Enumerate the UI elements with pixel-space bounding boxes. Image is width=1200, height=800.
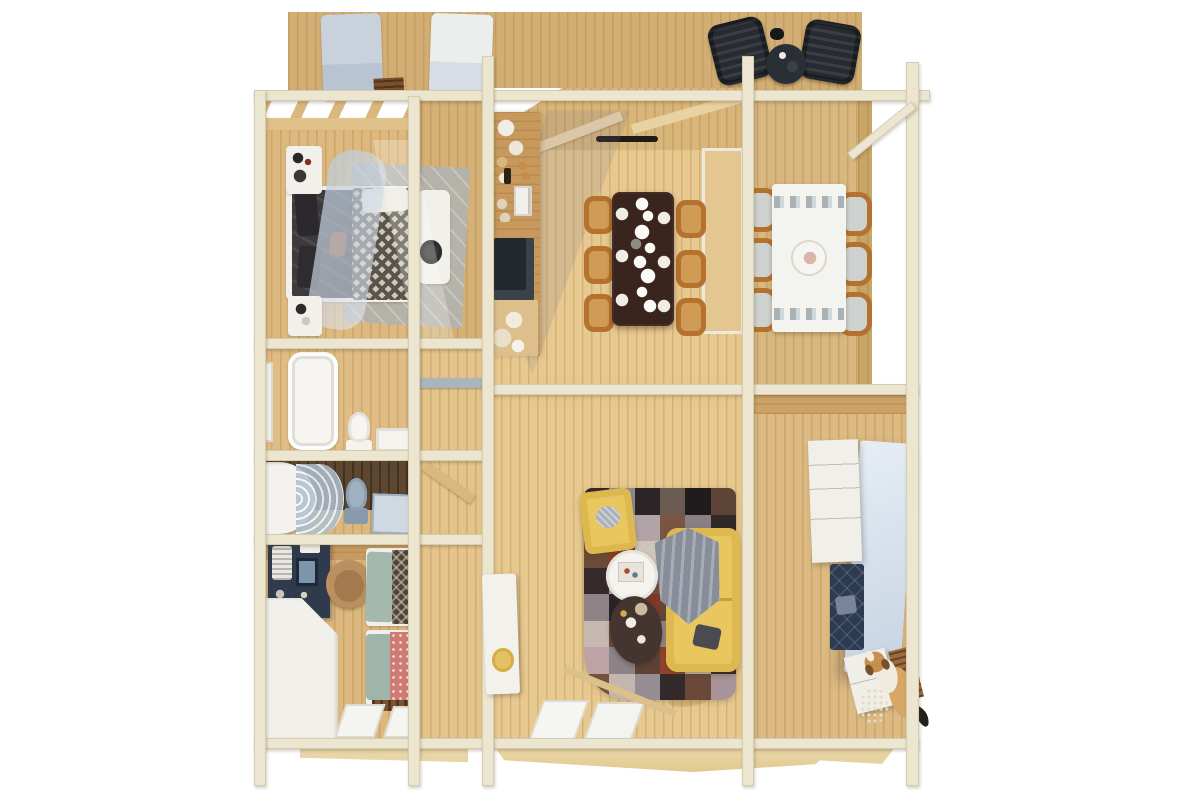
bench-pillow bbox=[835, 595, 857, 616]
cut-post-right-of-main bbox=[742, 56, 754, 786]
table-runner-band bbox=[774, 196, 844, 208]
patio-table bbox=[766, 44, 806, 84]
kettle bbox=[770, 28, 784, 40]
plate bbox=[787, 61, 798, 72]
knit-blanket-ball bbox=[596, 506, 620, 528]
dresser-decor bbox=[292, 152, 314, 186]
pergola-post-right bbox=[906, 62, 919, 786]
coffee-machine bbox=[514, 186, 532, 216]
lounge-chair bbox=[797, 18, 863, 87]
toilet-bowl bbox=[348, 412, 370, 442]
cut-post-mid-left bbox=[408, 96, 420, 786]
dining-chair bbox=[584, 246, 614, 284]
cup bbox=[779, 52, 786, 59]
rug-tile bbox=[635, 515, 660, 542]
dark-pillow bbox=[294, 191, 320, 237]
floorplan-canvas bbox=[0, 0, 1200, 800]
round-chair-seat bbox=[334, 570, 364, 602]
vanity-mirror bbox=[296, 558, 318, 586]
dining-chair bbox=[584, 196, 614, 234]
rug-tile bbox=[711, 488, 736, 515]
toilet-gray-base bbox=[344, 508, 368, 524]
dining-chair bbox=[676, 298, 706, 336]
rug-tile bbox=[584, 594, 609, 621]
table-setting bbox=[612, 192, 674, 326]
door-mirror-yellow bbox=[492, 648, 514, 672]
rug-tile bbox=[685, 488, 710, 515]
dining-chair bbox=[584, 294, 614, 332]
center-plate bbox=[791, 240, 827, 276]
cut-beam-horizontal-bed-bath bbox=[254, 338, 490, 349]
hallway-ledge bbox=[418, 378, 486, 388]
glass-door-to-terrace bbox=[702, 148, 744, 334]
cut-beam-horizontal-top bbox=[254, 90, 930, 101]
vanity-radiator bbox=[272, 546, 292, 580]
prep-board bbox=[492, 300, 538, 356]
rug-tile bbox=[660, 488, 685, 515]
cut-beam-horizontal-front bbox=[254, 738, 918, 749]
dining-chair bbox=[676, 200, 706, 238]
table-tray bbox=[618, 562, 644, 582]
toilet-gray-bowl bbox=[346, 478, 367, 510]
nightstand-decor bbox=[294, 302, 314, 328]
cooktop bbox=[494, 238, 534, 300]
cut-post-left bbox=[254, 90, 266, 786]
table-runner-band bbox=[774, 308, 844, 320]
cut-beam-horizontal-main bbox=[482, 384, 918, 395]
white-drawer-cabinet bbox=[808, 439, 862, 563]
bed2-teal-foot bbox=[366, 634, 392, 700]
rug-tile bbox=[635, 488, 660, 515]
rug-tile bbox=[660, 674, 685, 701]
bed1-teal-foot bbox=[365, 552, 395, 623]
bathtub bbox=[288, 352, 338, 450]
rug-tile bbox=[584, 647, 609, 674]
shower-glass bbox=[296, 464, 344, 534]
white-door-with-mirror bbox=[482, 573, 520, 694]
rug-tile bbox=[584, 621, 609, 648]
dining-chair bbox=[676, 250, 706, 288]
cut-beam-horizontal-shower-kids bbox=[254, 534, 490, 545]
cut-beam-horizontal-bath-shower bbox=[254, 450, 490, 461]
rug-tile bbox=[685, 674, 710, 701]
counter-bottle bbox=[504, 168, 511, 184]
